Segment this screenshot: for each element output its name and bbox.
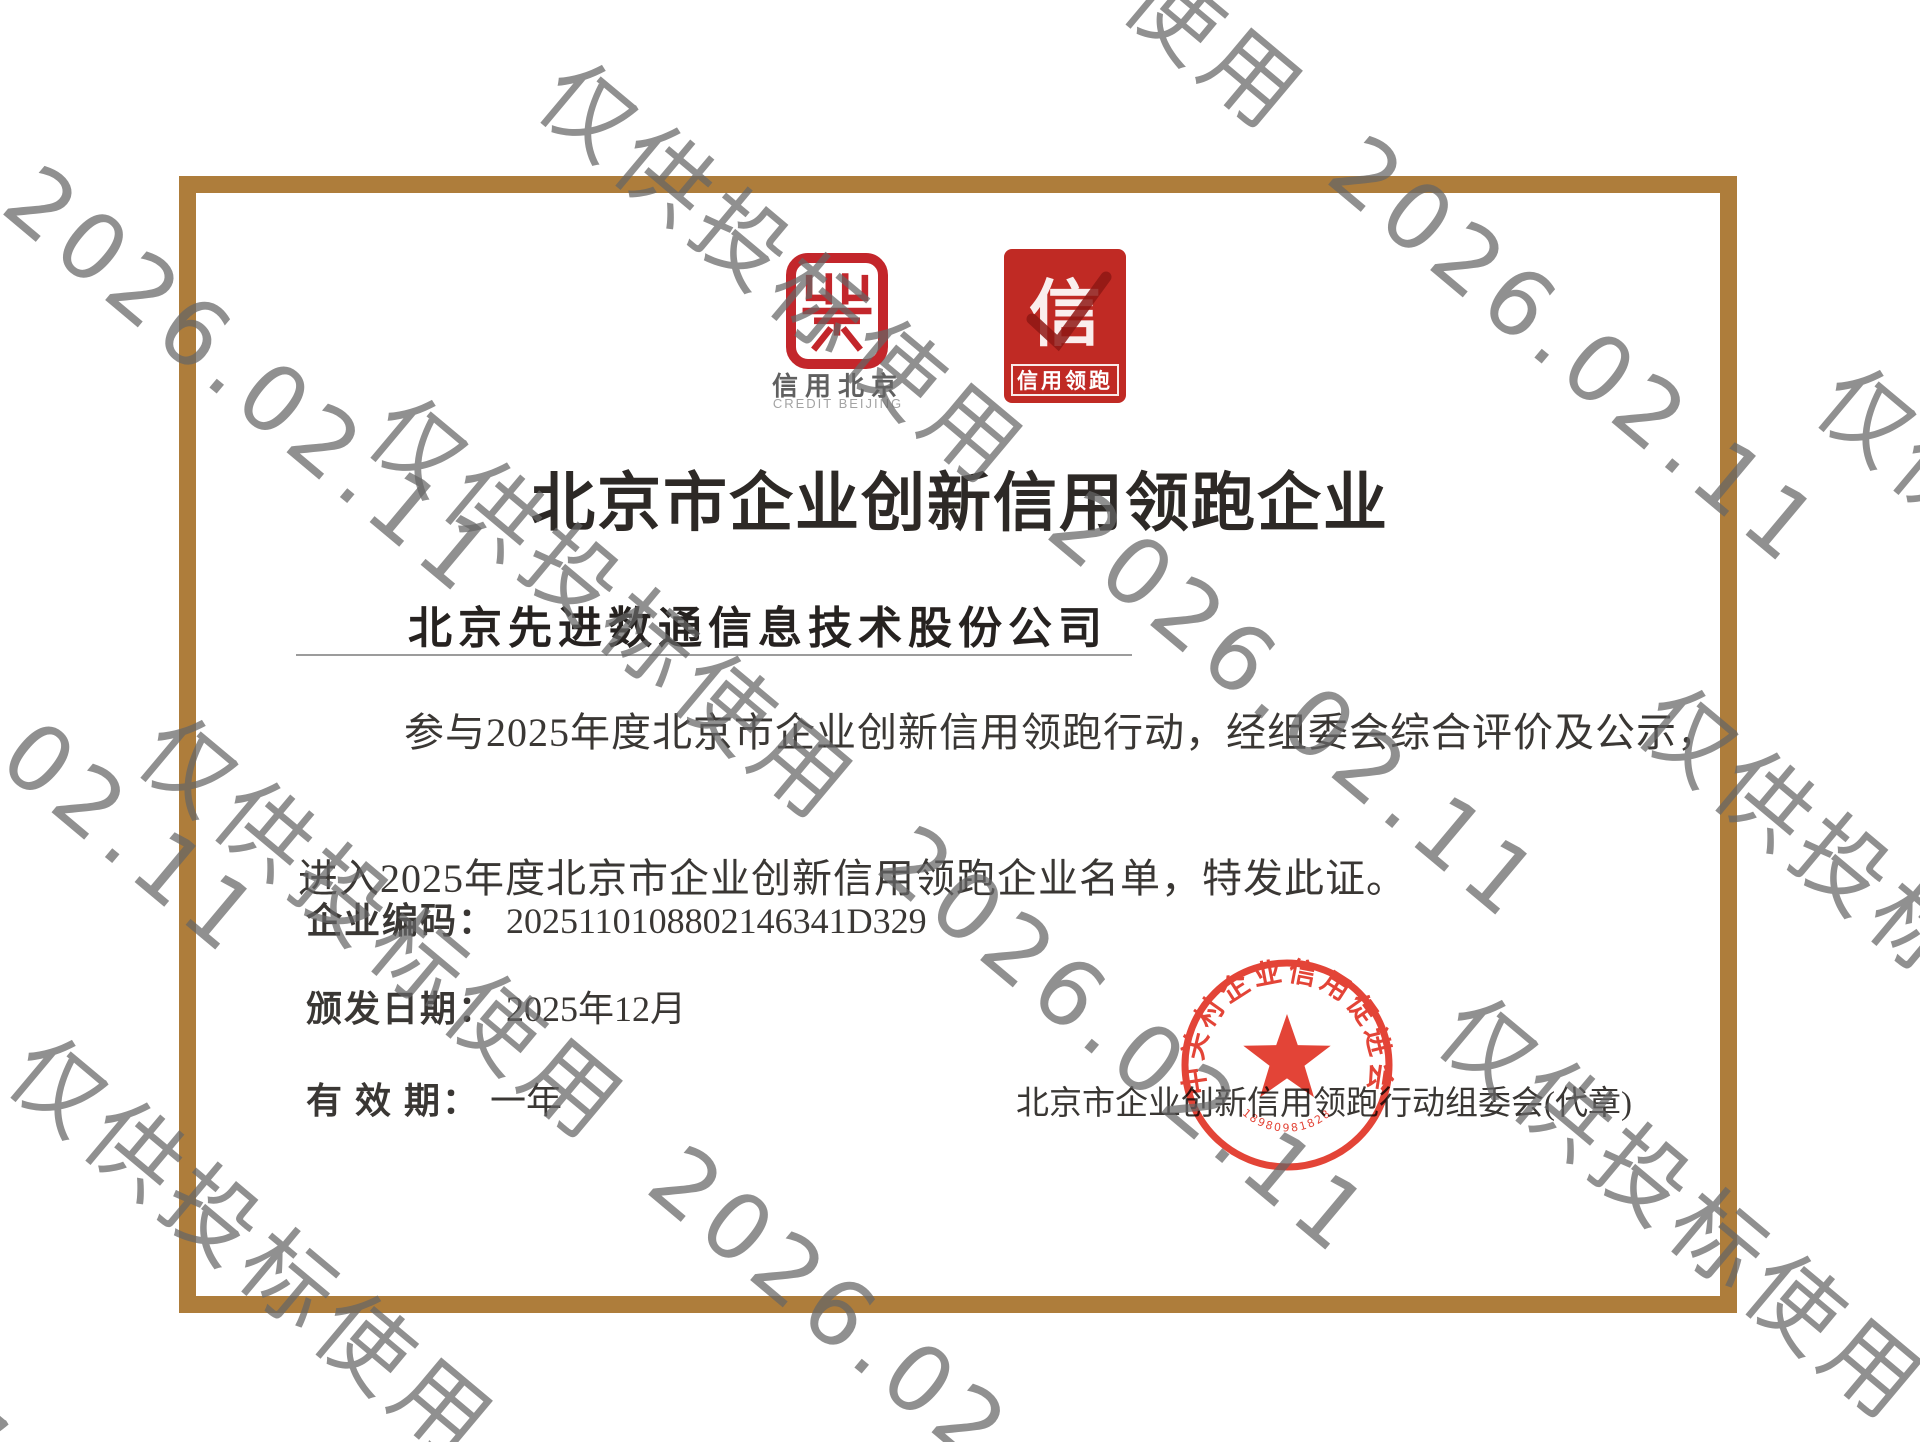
issue-date-label: 颁发日期： (306, 989, 496, 1029)
credit-leader-seal-icon: 信 信用领跑 (1004, 249, 1126, 403)
certificate-page: 信用北京 CREDIT BEIJING 信 信用领跑 北京市企业创新信用领跑企业… (0, 0, 1920, 1442)
watermark-text: 仅供投标使用 2026.02.11 (0, 1340, 946, 1442)
credit-beijing-label-en: CREDIT BEIJING (758, 396, 918, 411)
checkmark-icon (1018, 267, 1112, 355)
company-name: 北京先进数通信息技术股份公司 (408, 592, 1108, 656)
watermark-text: 仅供投标使用 2026.02.11 (1793, 330, 1920, 1251)
enterprise-code-row: 企业编码：2025110108802146341D329 (306, 892, 927, 944)
issue-date-row: 颁发日期：2025年12月 (306, 980, 686, 1032)
validity-label: 有 效 期： (306, 1081, 480, 1121)
certificate-title: 北京市企业创新信用领跑企业 (531, 452, 1389, 544)
credit-beijing-monogram-icon (796, 263, 878, 359)
validity-row: 有 效 期：一年 (306, 1072, 562, 1124)
official-stamp-icon: 中关村企业信用促进会 1189809818284 (1170, 948, 1404, 1182)
body-line-1: 参与2025年度北京市企业创新信用领跑行动，经组委会综合评价及公示， (404, 700, 1718, 758)
enterprise-code-value: 2025110108802146341D329 (506, 901, 927, 941)
enterprise-code-label: 企业编码： (306, 901, 496, 941)
stamp-star-icon (1243, 1014, 1330, 1097)
validity-value: 一年 (490, 1081, 562, 1121)
credit-leader-band-label: 信用领跑 (1011, 364, 1119, 396)
credit-beijing-logo-icon (786, 253, 888, 369)
issue-date-value: 2025年12月 (506, 989, 686, 1029)
